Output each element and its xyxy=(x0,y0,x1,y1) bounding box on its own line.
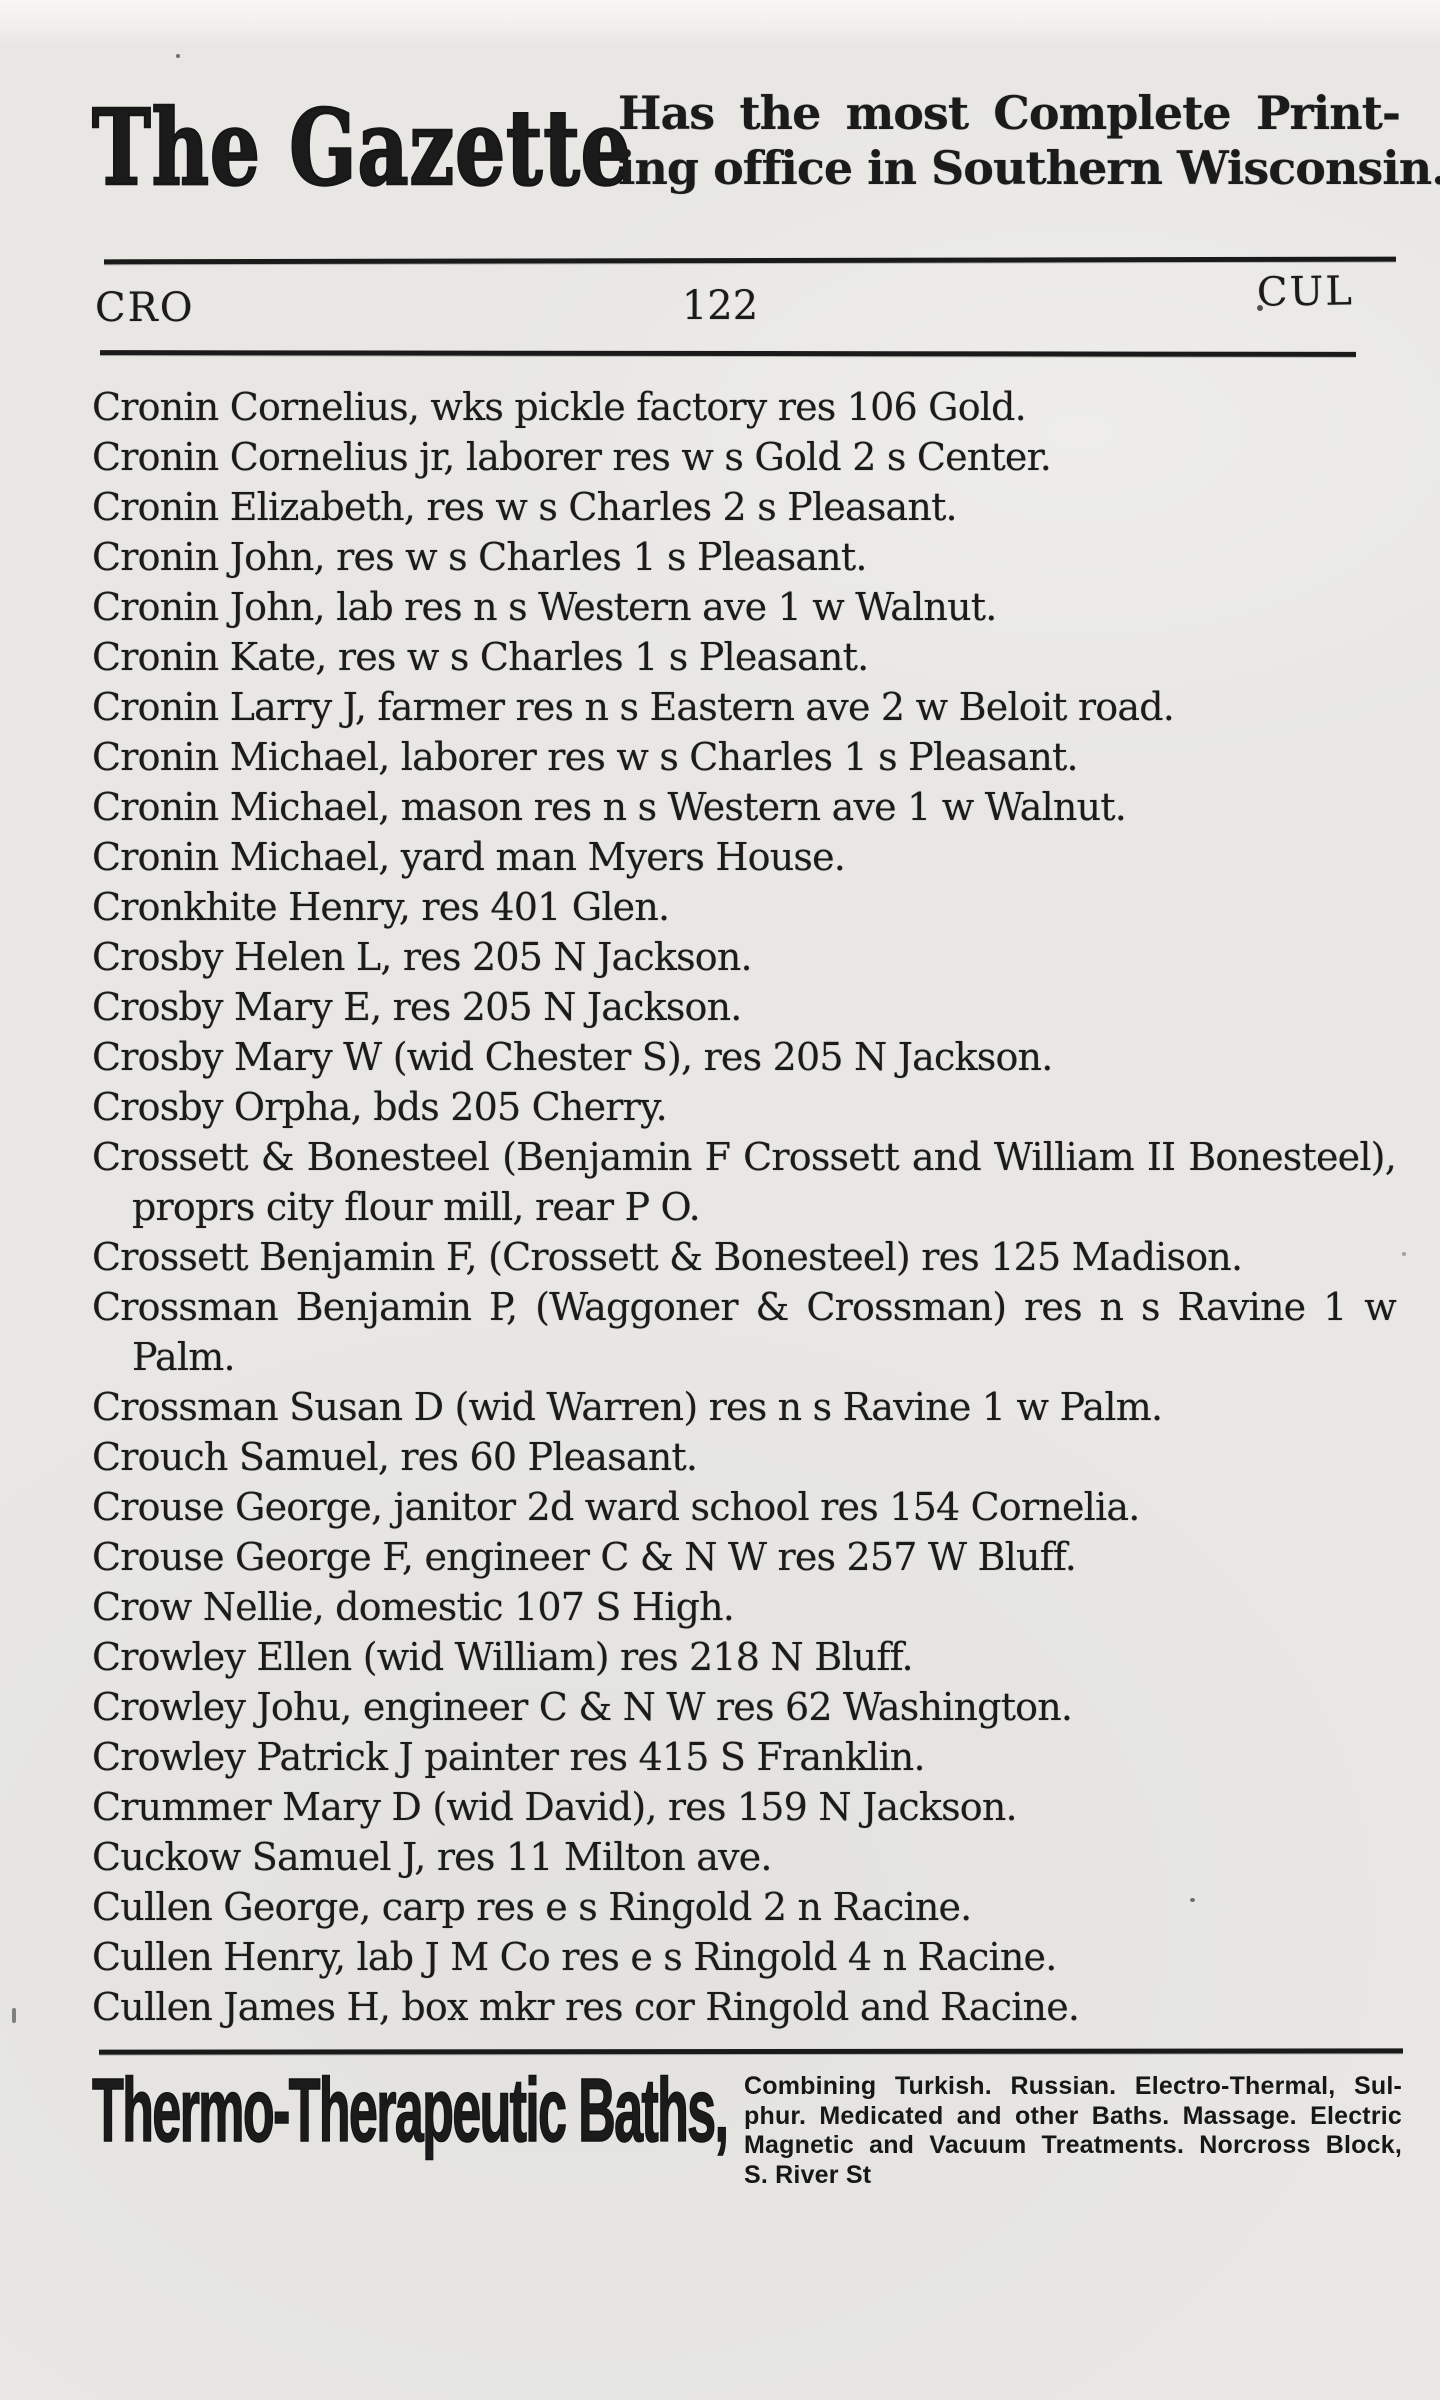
directory-entry: Crosby Helen L, res 205 N Jackson. xyxy=(92,932,1396,982)
directory-entry: Crowley Ellen (wid William) res 218 N Bl… xyxy=(92,1632,1396,1682)
directory-list: Cronin Cornelius, wks pickle factory res… xyxy=(92,382,1396,2032)
tagline-line-1: Has the most Complete Print- xyxy=(618,86,1400,141)
entry-line: Crummer Mary D (wid David), res 159 N Ja… xyxy=(92,1782,1396,1832)
entry-line: Cronin John, res w s Charles 1 s Pleasan… xyxy=(92,532,1396,582)
directory-entry: Crowley Patrick J painter res 415 S Fran… xyxy=(92,1732,1396,1782)
ink-dot-artifact xyxy=(1257,305,1263,311)
directory-entry: Cronin Michael, yard man Myers House. xyxy=(92,832,1396,882)
entry-line: Cronin Kate, res w s Charles 1 s Pleasan… xyxy=(92,632,1396,682)
page-guide-row: CRO 122 CUL xyxy=(95,281,1395,329)
ad-detail-line-3: Magnetic and Vacuum Treatments. Norcross… xyxy=(744,2131,1402,2161)
entry-line: Cronin Michael, mason res n s Western av… xyxy=(92,782,1396,832)
paper-speck xyxy=(1402,1252,1406,1256)
directory-entry: Crosby Orpha, bds 205 Cherry. xyxy=(92,1082,1396,1132)
directory-entry: Crosby Mary E, res 205 N Jackson. xyxy=(92,982,1396,1032)
ad-detail-line-1: Combining Turkish. Russian. Electro-Ther… xyxy=(744,2072,1402,2102)
paper-speck xyxy=(12,2008,16,2023)
directory-entry: Cronin Cornelius jr, laborer res w s Gol… xyxy=(92,432,1396,482)
entry-line: Cullen George, carp res e s Ringold 2 n … xyxy=(92,1882,1396,1932)
paper-speck xyxy=(176,54,180,58)
entry-line: Cronin Cornelius, wks pickle factory res… xyxy=(92,382,1396,432)
directory-entry: Cronkhite Henry, res 401 Glen. xyxy=(92,882,1396,932)
entry-line: Cuckow Samuel J, res 11 Milton ave. xyxy=(92,1832,1396,1882)
entry-line: Crossman Benjamin P, (Waggoner & Crossma… xyxy=(92,1282,1396,1332)
entry-line: Crosby Orpha, bds 205 Cherry. xyxy=(92,1082,1396,1132)
footer-divider-rule xyxy=(99,2048,1403,2054)
directory-entry: Cullen James H, box mkr res cor Ringold … xyxy=(92,1982,1396,2032)
ad-detail-line-4: S. River St xyxy=(744,2161,1402,2191)
directory-entry: Cronin Cornelius, wks pickle factory res… xyxy=(92,382,1396,432)
directory-entry: Cronin Elizabeth, res w s Charles 2 s Pl… xyxy=(92,482,1396,532)
directory-entry: Cronin Michael, laborer res w s Charles … xyxy=(92,732,1396,782)
directory-entry: Cronin Larry J, farmer res n s Eastern a… xyxy=(92,682,1396,732)
entry-line: proprs city flour mill, rear P O. xyxy=(132,1182,1396,1232)
entry-line: Cronin Larry J, farmer res n s Eastern a… xyxy=(92,682,1396,732)
footer-ad-details: Combining Turkish. Russian. Electro-Ther… xyxy=(744,2072,1402,2190)
entry-line: Crossman Susan D (wid Warren) res n s Ra… xyxy=(92,1382,1396,1432)
entry-line: Crowley Patrick J painter res 415 S Fran… xyxy=(92,1732,1396,1782)
directory-entry: Cullen George, carp res e s Ringold 2 n … xyxy=(92,1882,1396,1932)
directory-entry: Crossett Benjamin F, (Crossett & Boneste… xyxy=(92,1232,1396,1282)
ad-detail-line-2: phur. Medicated and other Baths. Massage… xyxy=(744,2102,1402,2132)
entry-line: Cullen Henry, lab J M Co res e s Ringold… xyxy=(92,1932,1396,1982)
entry-line: Cronin Cornelius jr, laborer res w s Gol… xyxy=(92,432,1396,482)
directory-entry: Cuckow Samuel J, res 11 Milton ave. xyxy=(92,1832,1396,1882)
directory-entry: Crossett & Bonesteel (Benjamin F Crosset… xyxy=(92,1132,1396,1232)
entry-line: Palm. xyxy=(132,1332,1396,1382)
entry-line: Cronin Elizabeth, res w s Charles 2 s Pl… xyxy=(92,482,1396,532)
footer-ad-name: Thermo-Therapeutic Baths, xyxy=(92,2066,727,2156)
directory-entry: Cronin John, lab res n s Western ave 1 w… xyxy=(92,582,1396,632)
entry-line: Cronkhite Henry, res 401 Glen. xyxy=(92,882,1396,932)
entry-line: Cronin Michael, yard man Myers House. xyxy=(92,832,1396,882)
entry-line: Crosby Mary E, res 205 N Jackson. xyxy=(92,982,1396,1032)
directory-entry: Crossman Benjamin P, (Waggoner & Crossma… xyxy=(92,1282,1396,1382)
page-number: 122 xyxy=(682,283,758,329)
entry-line: Crossett & Bonesteel (Benjamin F Crosset… xyxy=(92,1132,1396,1182)
directory-entry: Crosby Mary W (wid Chester S), res 205 N… xyxy=(92,1032,1396,1082)
entry-line: Cullen James H, box mkr res cor Ringold … xyxy=(92,1982,1396,2032)
guide-divider-rule xyxy=(100,350,1356,357)
directory-entry: Crouse George F, engineer C & N W res 25… xyxy=(92,1532,1396,1582)
entry-line: Cronin John, lab res n s Western ave 1 w… xyxy=(92,582,1396,632)
entry-line: Crouch Samuel, res 60 Pleasant. xyxy=(92,1432,1396,1482)
entry-line: Crouse George F, engineer C & N W res 25… xyxy=(92,1532,1396,1582)
entry-line: Crosby Helen L, res 205 N Jackson. xyxy=(92,932,1396,982)
top-divider-rule xyxy=(104,257,1396,265)
directory-entry: Cronin John, res w s Charles 1 s Pleasan… xyxy=(92,532,1396,582)
guide-word-right: CUL xyxy=(1257,268,1355,315)
directory-entry: Crouse George, janitor 2d ward school re… xyxy=(92,1482,1396,1532)
tagline-line-2: ing office in Southern Wisconsin. xyxy=(618,141,1400,196)
entry-line: Crowley Ellen (wid William) res 218 N Bl… xyxy=(92,1632,1396,1682)
entry-line: Crowley Johu, engineer C & N W res 62 Wa… xyxy=(92,1682,1396,1732)
directory-entry: Cronin Kate, res w s Charles 1 s Pleasan… xyxy=(92,632,1396,682)
entry-line: Crosby Mary W (wid Chester S), res 205 N… xyxy=(92,1032,1396,1082)
directory-entry: Crow Nellie, domestic 107 S High. xyxy=(92,1582,1396,1632)
paper-speck xyxy=(1190,1898,1195,1902)
masthead-tagline: Has the most Complete Print- ing office … xyxy=(618,86,1400,196)
entry-line: Crouse George, janitor 2d ward school re… xyxy=(92,1482,1396,1532)
directory-entry: Crouch Samuel, res 60 Pleasant. xyxy=(92,1432,1396,1482)
directory-entry: Crossman Susan D (wid Warren) res n s Ra… xyxy=(92,1382,1396,1432)
directory-entry: Crowley Johu, engineer C & N W res 62 Wa… xyxy=(92,1682,1396,1732)
directory-entry: Crummer Mary D (wid David), res 159 N Ja… xyxy=(92,1782,1396,1832)
entry-line: Cronin Michael, laborer res w s Charles … xyxy=(92,732,1396,782)
guide-word-left: CRO xyxy=(95,285,195,331)
directory-entry: Cullen Henry, lab J M Co res e s Ringold… xyxy=(92,1932,1396,1982)
entry-line: Crow Nellie, domestic 107 S High. xyxy=(92,1582,1396,1632)
masthead-brand: The Gazette xyxy=(92,96,632,200)
directory-entry: Cronin Michael, mason res n s Western av… xyxy=(92,782,1396,832)
entry-line: Crossett Benjamin F, (Crossett & Boneste… xyxy=(92,1232,1396,1282)
